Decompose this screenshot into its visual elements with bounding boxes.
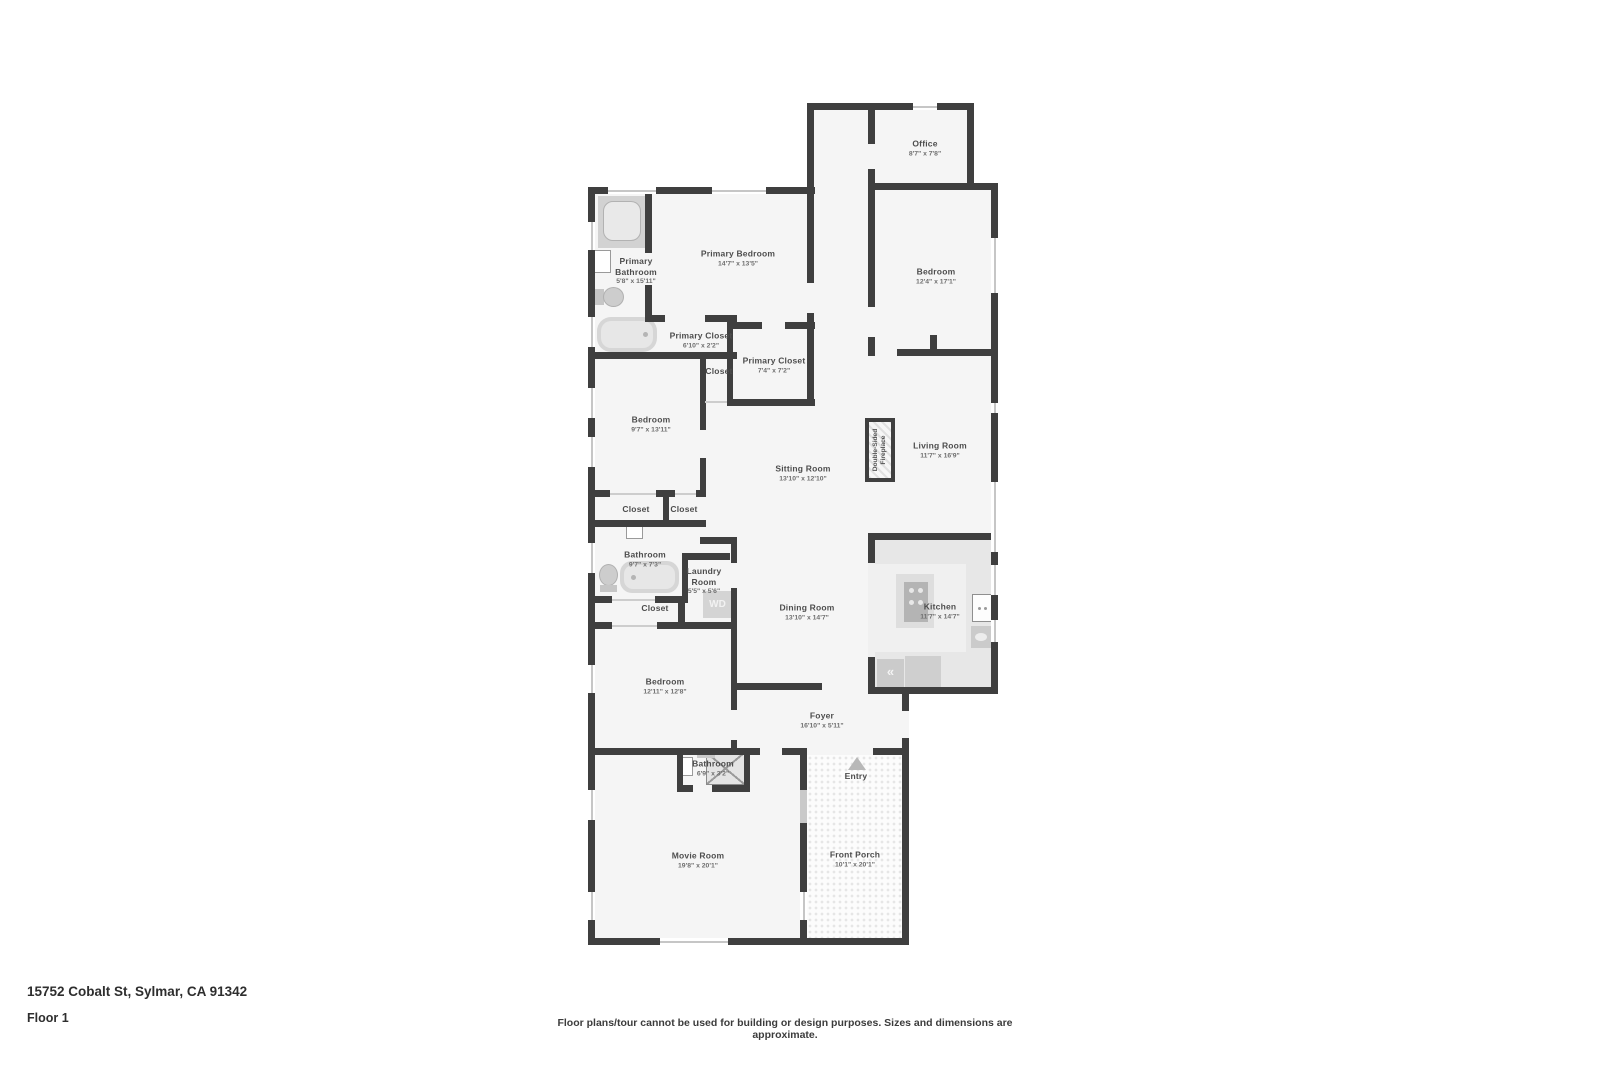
window	[991, 238, 998, 293]
window	[588, 790, 595, 820]
wall	[712, 785, 750, 792]
window-sill-icon	[994, 565, 996, 595]
wall	[655, 596, 685, 603]
window-sill-icon	[660, 941, 728, 943]
burner-icon	[909, 588, 914, 593]
closet-door-line	[612, 625, 657, 627]
wall	[731, 740, 737, 755]
window-sill-icon	[994, 238, 996, 293]
window	[608, 187, 656, 194]
window	[991, 565, 998, 595]
wall	[868, 533, 998, 540]
wall	[930, 335, 937, 356]
wall	[588, 596, 612, 603]
window-sill-icon	[591, 665, 593, 693]
toilet-tank-fixture	[600, 585, 617, 592]
wall	[807, 103, 973, 110]
wall	[902, 694, 909, 711]
wall	[731, 629, 737, 710]
wall	[868, 337, 875, 356]
burner-icon	[918, 588, 923, 593]
window	[588, 388, 595, 418]
window	[588, 437, 595, 467]
property-address: 15752 Cobalt St, Sylmar, CA 91342	[27, 984, 247, 999]
wall	[868, 190, 875, 307]
window-sill-icon	[591, 222, 593, 250]
toilet-fixture	[599, 564, 618, 586]
window-sill-icon	[608, 190, 656, 192]
closet-door-line	[610, 493, 656, 495]
range-fixture	[905, 656, 941, 687]
wall	[588, 938, 909, 945]
dishwasher-fixture	[971, 626, 991, 648]
porch-door-panel	[800, 790, 807, 823]
wall	[873, 748, 909, 755]
floor-plan-page: «WDDouble-Sided FireplaceOffice8'7" x 7'…	[0, 0, 1600, 1067]
floor-plan: «WDDouble-Sided FireplaceOffice8'7" x 7'…	[585, 100, 1000, 948]
shower-fixture	[598, 196, 648, 248]
wall	[645, 315, 665, 322]
wall	[677, 785, 693, 792]
window-sill-icon	[803, 892, 805, 920]
room-floor	[737, 690, 909, 755]
wall	[868, 687, 998, 694]
closet-door-line	[612, 599, 655, 601]
wall	[705, 315, 737, 322]
stove-fixture	[904, 582, 928, 622]
window	[991, 620, 998, 642]
wall	[785, 322, 815, 329]
wall	[727, 322, 733, 406]
window-sill-icon	[591, 388, 593, 418]
window-sill-icon	[994, 482, 996, 552]
faucet-icon	[978, 607, 981, 610]
wall	[696, 490, 706, 497]
window-sill-icon	[591, 543, 593, 573]
dishwasher-icon	[975, 633, 987, 641]
burner-icon	[918, 600, 923, 605]
wall	[737, 683, 822, 690]
wall	[588, 622, 612, 629]
wall	[682, 553, 730, 560]
window-sill-icon	[591, 317, 593, 347]
wall	[868, 103, 875, 144]
wall	[731, 537, 737, 563]
window	[588, 543, 595, 573]
wall	[657, 622, 737, 629]
burner-icon	[909, 600, 914, 605]
wall	[782, 748, 807, 755]
window-sill-icon	[913, 106, 937, 108]
window-sill-icon	[712, 190, 766, 192]
front-porch-paving	[807, 755, 902, 938]
window	[588, 222, 595, 250]
disclaimer-text: Floor plans/tour cannot be used for buil…	[535, 1017, 1035, 1041]
closet-door-line	[675, 493, 696, 495]
window	[991, 482, 998, 552]
room-floor	[807, 183, 998, 363]
wall	[588, 520, 706, 527]
shower-pan-icon	[603, 201, 641, 241]
wall	[868, 533, 875, 563]
window-sill-icon	[994, 403, 996, 413]
fireplace-label: Double-Sided Fireplace	[865, 418, 895, 482]
room-floor	[807, 103, 973, 190]
toilet-fixture	[603, 287, 624, 307]
wall	[588, 352, 737, 359]
window-sill-icon	[591, 790, 593, 820]
closet-door-line	[705, 401, 727, 403]
floor-label: Floor 1	[27, 1011, 69, 1025]
faucet-icon	[631, 575, 636, 580]
wall	[897, 349, 998, 356]
wall	[663, 497, 669, 520]
wall	[868, 183, 998, 190]
wall	[727, 399, 815, 406]
wall	[645, 194, 652, 253]
bathtub-fixture	[597, 317, 657, 352]
window	[712, 187, 766, 194]
washer-dryer-fixture: WD	[703, 591, 732, 618]
wall	[967, 103, 974, 190]
faucet-icon	[643, 332, 648, 337]
kitchen-sink-fixture	[972, 594, 992, 622]
refrigerator-fixture: «	[877, 659, 904, 687]
window	[913, 103, 937, 110]
wall	[700, 352, 706, 430]
window	[800, 892, 807, 920]
window	[660, 938, 728, 945]
entry-arrow-icon	[848, 757, 866, 770]
window	[588, 665, 595, 693]
sink-fixture	[594, 250, 611, 273]
window-sill-icon	[994, 620, 996, 642]
window-sill-icon	[591, 437, 593, 467]
wall	[656, 490, 675, 497]
window-sill-icon	[591, 892, 593, 920]
window	[588, 892, 595, 920]
window	[588, 317, 595, 347]
wall	[807, 103, 814, 283]
room-floor	[700, 356, 998, 540]
window	[991, 403, 998, 413]
bathtub-fixture	[620, 561, 679, 593]
wall	[588, 490, 610, 497]
wall	[902, 755, 909, 945]
